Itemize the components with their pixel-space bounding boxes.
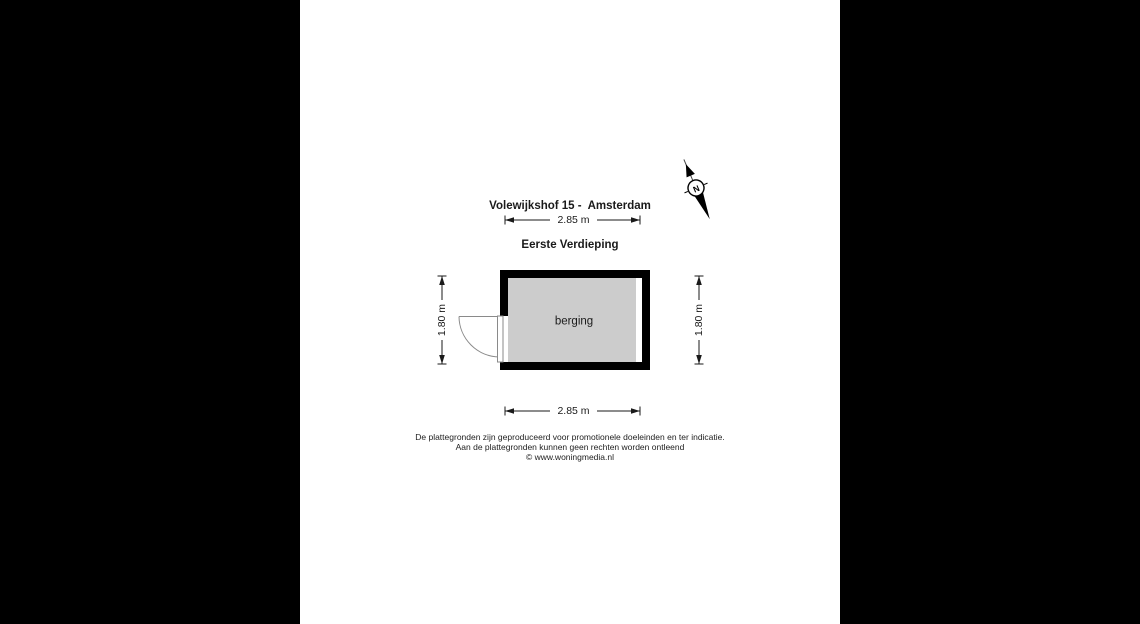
floor-plan-page: Volewijkshof 15 - Amsterdam Eerste Verdi… bbox=[0, 0, 1140, 624]
dimension-right: 1.80 m bbox=[693, 276, 705, 364]
dimension-left-label: 1.80 m bbox=[436, 304, 448, 336]
room-berging: berging bbox=[459, 270, 650, 370]
footer-disclaimer-line-2: Aan de plattegronden kunnen geen rechten… bbox=[300, 442, 840, 452]
plan-footer: De plattegronden zijn geproduceerd voor … bbox=[300, 432, 840, 462]
door-swing-arc bbox=[459, 317, 500, 358]
dimension-left: 1.80 m bbox=[436, 276, 448, 364]
compass-tick-east bbox=[704, 183, 707, 184]
dimension-left-arrow-top bbox=[439, 276, 445, 285]
dimension-right-arrow-top bbox=[696, 276, 702, 285]
dimension-top-label: 2.85 m bbox=[557, 214, 589, 226]
dimension-bottom: 2.85 m bbox=[505, 405, 640, 417]
dimension-right-arrow-bottom bbox=[696, 355, 702, 364]
dimension-right-label: 1.80 m bbox=[693, 304, 705, 336]
dimension-bottom-label: 2.85 m bbox=[557, 405, 589, 417]
room-label: berging bbox=[555, 316, 593, 328]
footer-disclaimer-line-1: De plattegronden zijn geproduceerd voor … bbox=[300, 432, 840, 442]
floor-plan-drawing: 2.85 m 2.85 m 1.80 m bbox=[0, 0, 1140, 624]
door-leaf bbox=[498, 316, 504, 362]
compass-north-arrow-icon: N bbox=[672, 155, 720, 225]
compass-tick-west bbox=[684, 191, 687, 192]
footer-credit: © www.woningmedia.nl bbox=[300, 452, 840, 462]
compass-north-arrowhead bbox=[682, 162, 695, 177]
dimension-left-arrow-bottom bbox=[439, 355, 445, 364]
dimension-top: 2.85 m bbox=[505, 214, 640, 226]
dimension-top-arrow-right bbox=[631, 217, 640, 223]
dimension-bottom-arrow-right bbox=[631, 408, 640, 414]
dimension-bottom-arrow-left bbox=[505, 408, 514, 414]
dimension-top-arrow-left bbox=[505, 217, 514, 223]
